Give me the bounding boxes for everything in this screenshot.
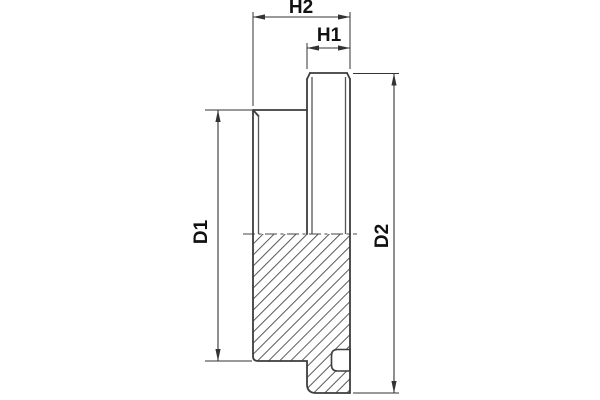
- dim-label-h1: H1: [309, 28, 349, 44]
- arrowhead-left-icon: [253, 14, 265, 19]
- arrowhead-left-icon: [307, 45, 319, 50]
- chamfer-lines: [259, 77, 346, 234]
- dim-label-d1: D1: [194, 212, 210, 252]
- part-section-view: [0, 0, 600, 400]
- arrowhead-right-icon: [338, 45, 350, 50]
- dimension-h1: [307, 45, 350, 50]
- arrowhead-up-icon: [391, 74, 396, 86]
- arrowhead-down-icon: [215, 349, 220, 361]
- arrowhead-up-icon: [215, 110, 220, 122]
- arrowhead-right-icon: [338, 14, 350, 19]
- dim-label-d2: D2: [375, 216, 391, 256]
- technical-drawing-canvas: H2 H1 D1 D2: [0, 0, 600, 400]
- arrowhead-down-icon: [391, 381, 396, 393]
- dim-label-h2: H2: [281, 0, 321, 16]
- groove-notch: [332, 350, 351, 372]
- dimension-d1: [215, 110, 220, 361]
